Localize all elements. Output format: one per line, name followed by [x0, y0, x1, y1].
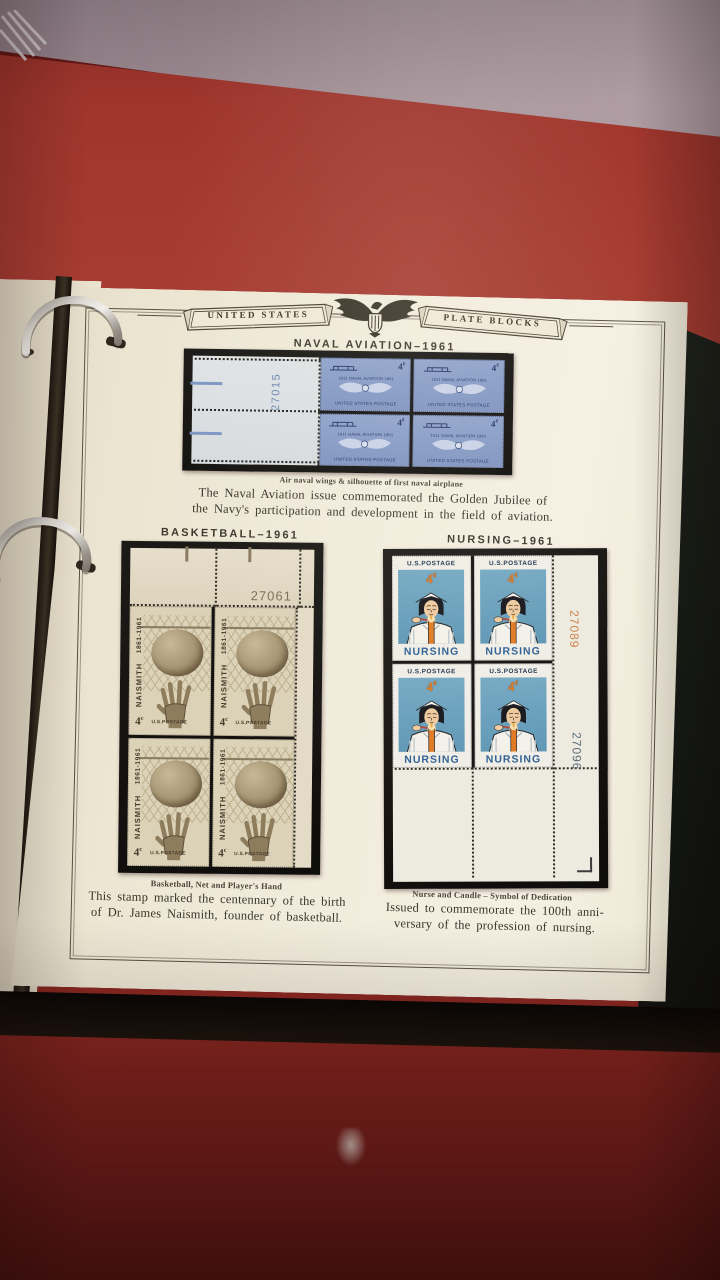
basketball-stamp: 1861-1961 NAISMITH 4c U.S.POSTAGE [127, 737, 210, 866]
naval-denomination: 4¢ [397, 417, 405, 427]
binder-ring-bottom [0, 512, 102, 586]
naval-selvage: 27015 [191, 356, 320, 466]
naval-stamp-bottom-text: UNITED STATES POSTAGE [414, 457, 502, 463]
plate-blocks-banner: PLATE BLOCKS [414, 302, 570, 344]
naval-aviator-wings-icon [429, 436, 487, 454]
basketball-denomination: 4c [220, 715, 229, 728]
naval-aviation-plate-block-mount: 27015 4¢ 1911 NAVAL AVIATION 1961 [182, 349, 514, 476]
basketball-denomination: 4c [218, 847, 227, 860]
nursing-plate-block-mount: 27089 27096 U.S.POSTAGE [383, 548, 608, 889]
eagle-emblem-icon [327, 292, 424, 340]
naval-stamp-bottom-text: UNITED STATES POSTAGE [415, 402, 503, 408]
nursing-stamp-picture: 4¢ [480, 677, 546, 751]
airplane-icon [328, 418, 358, 428]
nursing-denomination: 4¢ [426, 678, 437, 694]
album-page: UNITED STATES [11, 286, 688, 1002]
basketball-stamp-years: 1861-1961 [134, 748, 141, 785]
basketball-stamp-grid: 1861-1961 NAISMITH 4c U.S.POSTAGE [127, 606, 296, 868]
naval-denomination: 4¢ [491, 418, 499, 428]
naval-aviation-stamp: 4¢ 1911 NAVAL AVIATION 1961 UNITED STATE… [413, 414, 504, 468]
nursing-denomination: 4¢ [508, 571, 519, 587]
basketball-plate-number: 27061 [251, 588, 292, 603]
naval-stamp-bottom-text: UNITED STATES POSTAGE [321, 456, 409, 462]
cloth-fringe [0, 10, 60, 70]
nursing-stamp-picture: 4¢ [398, 570, 464, 644]
basketball-stamp-name: NAISMITH [217, 796, 226, 840]
basketball-stamp-years: 1861-1961 [219, 749, 226, 786]
nursing-plate-number-bottom: 27096 [570, 732, 584, 770]
basketball-denomination: 4c [135, 714, 144, 727]
basketball-stamp: 1861-1961 NAISMITH 4c U.S.POSTAGE [212, 738, 295, 867]
nursing-postage-text: U.S.POSTAGE [401, 560, 462, 567]
nursing-stamp-name: NURSING [394, 754, 471, 766]
nursing-denomination: 4¢ [508, 678, 519, 694]
basketball-plate-block: 27061 [127, 548, 314, 868]
basketball-postage-text: U.S.POSTAGE [150, 719, 188, 725]
basketball-postage-text: U.S.POSTAGE [149, 850, 187, 856]
naval-plate-block: 27015 4¢ 1911 NAVAL AVIATION 1961 [191, 356, 504, 468]
basketball-denomination: 4c [134, 846, 143, 859]
naval-denomination: 4¢ [492, 363, 500, 373]
nursing-plate-number-top: 27089 [567, 610, 581, 648]
basketball-icon [234, 761, 286, 809]
basketball-stamp: 1861-1961 NAISMITH 4c U.S.POSTAGE [128, 606, 211, 735]
perforation-column [214, 549, 217, 607]
basketball-postage-text: U.S.POSTAGE [235, 720, 273, 726]
registration-dash [190, 382, 222, 385]
naval-aviator-wings-icon [336, 435, 394, 453]
registration-dash [190, 431, 222, 434]
naval-plate-number: 27015 [270, 372, 283, 410]
basketball-stamp-name: NAISMITH [133, 795, 142, 839]
naval-aviation-stamp: 4¢ 1911 NAVAL AVIATION 1961 UNITED STATE… [319, 413, 410, 467]
basketball-stamp-years: 1861-1961 [220, 617, 227, 654]
nursing-selvage: 27089 27096 U.S.POSTAGE [392, 555, 599, 882]
basketball-stamp-name: NAISMITH [134, 663, 143, 707]
perforation-column [299, 550, 302, 608]
header-rule-right [569, 325, 613, 327]
binder-ring-top [18, 292, 130, 360]
registration-dash [248, 547, 251, 562]
basketball-stamp-name: NAISMITH [219, 664, 228, 708]
nurse-with-candle-icon [400, 590, 462, 644]
basketball-plate-block-mount: 27061 [118, 541, 323, 875]
perforation-row [193, 460, 319, 464]
nursing-stamp-name: NURSING [475, 646, 552, 658]
basketball-icon [151, 629, 203, 677]
header-rule-left [137, 314, 181, 316]
nursing-plate-block: 27089 27096 U.S.POSTAGE [392, 555, 599, 882]
nursing-stamp-name: NURSING [393, 646, 470, 658]
naval-stamp-grid: 4¢ 1911 NAVAL AVIATION 1961 UNITED STATE… [319, 357, 505, 468]
basketball-icon [236, 629, 288, 677]
naval-aviation-stamp: 4¢ 1911 NAVAL AVIATION 1961 UNITED STATE… [320, 357, 411, 411]
basketball-stamp-years: 1861-1961 [136, 617, 143, 654]
united-states-banner: UNITED STATES [181, 301, 335, 335]
nursing-stamp: U.S.POSTAGE [474, 663, 553, 768]
nursing-stamp: U.S.POSTAGE [474, 555, 553, 660]
nursing-postage-text: U.S.POSTAGE [482, 559, 543, 566]
perforation-row [194, 409, 320, 413]
airplane-icon [421, 419, 451, 429]
nursing-stamp-name: NURSING [475, 753, 552, 765]
nursing-postage-text: U.S.POSTAGE [483, 667, 544, 674]
basketball-stamp: 1861-1961 NAISMITH 4c U.S.POSTAGE [213, 607, 296, 736]
naval-aviation-stamp: 4¢ 1911 NAVAL AVIATION 1961 UNITED STATE… [413, 359, 504, 413]
airplane-icon [422, 364, 452, 374]
photo-scene: UNITED STATES [0, 0, 720, 1280]
nursing-stamp: U.S.POSTAGE [392, 556, 471, 661]
nurse-with-candle-icon [482, 590, 544, 644]
nurse-with-candle-icon [401, 697, 463, 751]
airplane-icon [329, 363, 359, 373]
naval-denomination: 4¢ [398, 362, 406, 372]
nurse-with-candle-icon [482, 697, 544, 751]
perforation-row [195, 358, 321, 362]
nursing-postage-text: U.S.POSTAGE [401, 667, 462, 674]
perforation-column [472, 768, 474, 878]
naval-aviator-wings-icon [336, 379, 394, 397]
basketball-block-body: 1861-1961 NAISMITH 4c U.S.POSTAGE [127, 606, 314, 868]
nursing-stamp-picture: 4¢ [480, 570, 546, 644]
basketball-postage-text: U.S.POSTAGE [233, 851, 271, 857]
basketball-selvage: 27061 [130, 548, 315, 608]
naval-stamp-bottom-text: UNITED STATES POSTAGE [321, 401, 409, 407]
electric-eye-mark [577, 857, 592, 872]
nursing-denomination: 4¢ [426, 571, 437, 587]
united-states-banner-label: UNITED STATES [181, 309, 335, 321]
basketball-right-selvage [293, 608, 314, 868]
tablecloth-speck [336, 1128, 366, 1166]
registration-dash [185, 546, 188, 561]
nursing-stamp-picture: 4¢ [399, 677, 465, 751]
nursing-stamp: U.S.POSTAGE [392, 663, 471, 768]
nursing-stamp-grid: U.S.POSTAGE [392, 555, 553, 768]
naval-aviator-wings-icon [430, 381, 488, 399]
